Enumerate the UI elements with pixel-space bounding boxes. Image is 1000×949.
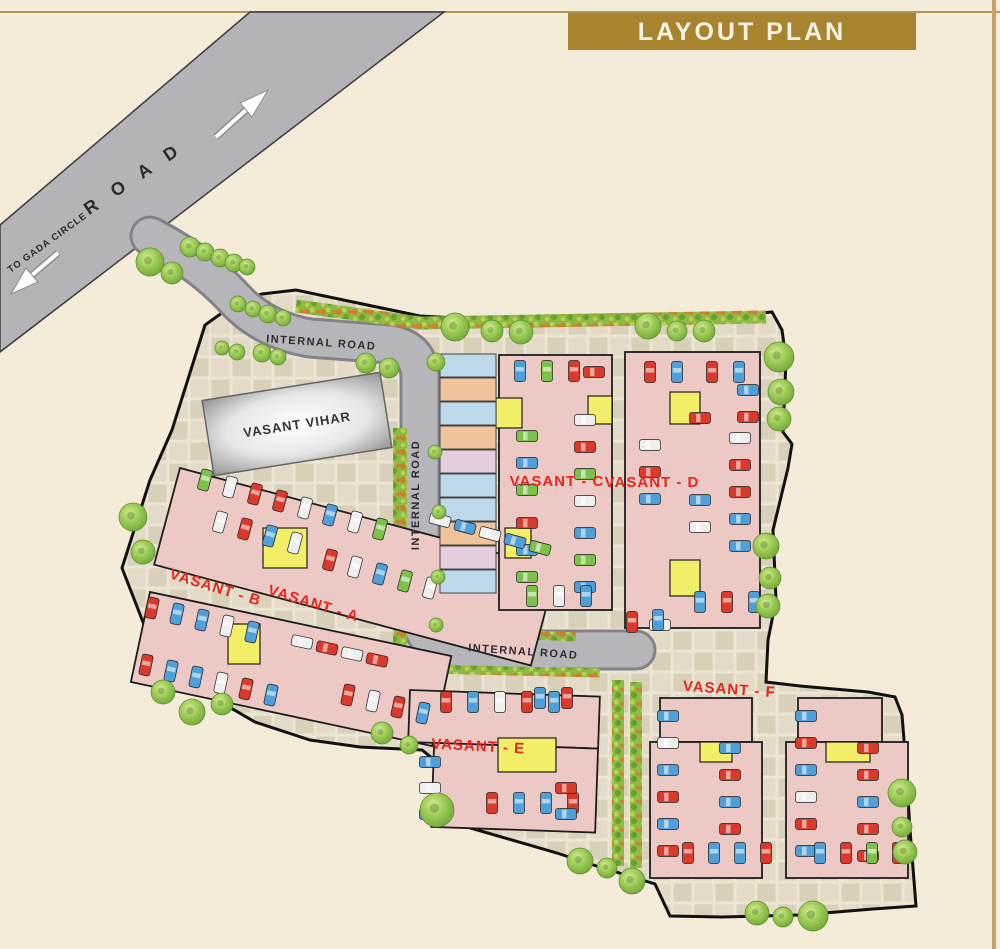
car-windshield (563, 694, 571, 699)
car-windshield (496, 698, 504, 703)
parked-car (653, 610, 664, 631)
car-windshield (696, 414, 701, 422)
car-windshield (581, 556, 586, 564)
car-windshield (664, 766, 669, 774)
parked-car (690, 522, 711, 533)
tree-icon-core (275, 354, 279, 358)
tree-icon-core (377, 729, 383, 735)
tree-icon-core (144, 257, 152, 265)
parked-car (562, 688, 573, 709)
tree-icon-core (449, 322, 457, 330)
car-windshield (523, 698, 531, 703)
car-windshield (543, 367, 551, 372)
tree-icon-core (264, 311, 269, 316)
car-windshield (864, 825, 869, 833)
parked-car (720, 770, 741, 781)
car-windshield (736, 542, 741, 550)
parked-car (514, 793, 525, 814)
parked-car (738, 385, 759, 396)
parked-car (730, 541, 751, 552)
parked-car (627, 612, 638, 633)
parked-car (796, 738, 817, 749)
shop-unit (440, 402, 496, 425)
shops-strip-layer (440, 354, 496, 593)
car-windshield (664, 847, 669, 855)
tree-icon-core (435, 574, 439, 578)
tree-icon-core (900, 847, 907, 854)
car-windshield (744, 413, 749, 421)
car-windshield (469, 698, 477, 703)
stair-core-C (496, 398, 522, 428)
car-windshield (628, 618, 636, 623)
car-windshield (528, 592, 536, 597)
parked-car (672, 362, 683, 383)
stair-core-D (670, 560, 700, 596)
parked-car (858, 824, 879, 835)
parked-car (658, 846, 679, 857)
parked-car (796, 765, 817, 776)
parked-car (575, 442, 596, 453)
tree-icon-core (516, 327, 523, 334)
car-windshield (550, 698, 558, 703)
parked-car (867, 843, 878, 864)
car-windshield (696, 523, 701, 531)
car-windshield (664, 820, 669, 828)
title-banner: LAYOUT PLAN (568, 13, 916, 50)
tree-icon-core (765, 574, 771, 580)
tree-icon-core (235, 301, 239, 305)
car-windshield (864, 744, 869, 752)
parked-car (707, 362, 718, 383)
shop-unit (440, 474, 496, 497)
car-windshield (864, 771, 869, 779)
car-windshield (523, 519, 528, 527)
parked-car (730, 514, 751, 525)
parked-car (658, 765, 679, 776)
car-windshield (523, 573, 528, 581)
right-border-line (992, 0, 996, 949)
car-windshield (744, 386, 749, 394)
tree-icon-core (673, 327, 679, 333)
car-windshield (736, 515, 741, 523)
parked-car (734, 362, 745, 383)
tree-icon-core (432, 359, 437, 364)
car-windshield (726, 771, 731, 779)
tree-icon-core (167, 269, 173, 275)
parked-car (522, 692, 533, 713)
page-title: LAYOUT PLAN (638, 18, 846, 46)
car-windshield (646, 495, 651, 503)
car-windshield (516, 367, 524, 372)
tree-icon-core (487, 327, 493, 333)
car-windshield (523, 432, 528, 440)
tree-icon-core (250, 306, 254, 310)
tree-icon-core (896, 788, 904, 796)
parked-car (569, 361, 580, 382)
tree-icon-core (230, 260, 235, 265)
parked-car (517, 431, 538, 442)
parked-car (549, 692, 560, 713)
car-windshield (673, 368, 681, 373)
layout-plan-page: R O A D TO GADA CIRCLE VASANT VIHAR INTE… (0, 0, 1000, 949)
car-windshield (581, 497, 586, 505)
shop-unit (440, 378, 496, 401)
car-windshield (726, 798, 731, 806)
shop-unit (440, 426, 496, 449)
parked-car (515, 361, 526, 382)
parked-car (796, 819, 817, 830)
tree-icon-core (234, 349, 238, 353)
tree-icon-core (898, 823, 904, 829)
car-windshield (646, 368, 654, 373)
car-windshield (735, 368, 743, 373)
car-windshield (426, 784, 431, 792)
car-windshield (523, 459, 528, 467)
tree-icon-core (138, 547, 145, 554)
car-windshield (562, 810, 567, 818)
parked-car (720, 824, 741, 835)
tree-icon-core (807, 910, 815, 918)
car-windshield (726, 744, 731, 752)
tree-icon-core (432, 449, 436, 453)
car-windshield (569, 799, 577, 804)
parked-car (722, 592, 733, 613)
parked-car (720, 743, 741, 754)
shop-unit (440, 546, 496, 569)
parked-car (658, 792, 679, 803)
parked-car (858, 797, 879, 808)
internal-road-label-vertical: INTERNAL ROAD (410, 440, 422, 550)
tree-icon-core (760, 541, 767, 548)
parked-car (575, 528, 596, 539)
car-windshield (696, 496, 701, 504)
tree-icon-core (127, 512, 135, 520)
parked-car (645, 362, 656, 383)
layout-plan-canvas: R O A D TO GADA CIRCLE VASANT VIHAR INTE… (0, 0, 1000, 949)
parked-car (658, 711, 679, 722)
car-windshield (426, 758, 431, 766)
parked-car (695, 592, 706, 613)
parked-car (420, 783, 441, 794)
car-windshield (562, 784, 567, 792)
parked-car (441, 692, 452, 713)
car-windshield (542, 799, 550, 804)
car-windshield (555, 592, 563, 597)
tree-icon-core (244, 264, 248, 268)
car-windshield (696, 598, 704, 603)
parked-car (761, 843, 772, 864)
shop-unit (440, 354, 496, 377)
car-windshield (802, 820, 807, 828)
parked-car (468, 692, 479, 713)
label-vasant-d: VASANT - D (605, 474, 700, 491)
parked-car (581, 586, 592, 607)
tree-icon-core (774, 414, 781, 421)
car-windshield (582, 592, 590, 597)
tree-icon-core (201, 249, 206, 254)
shop-unit (440, 450, 496, 473)
car-windshield (664, 739, 669, 747)
parked-car (730, 433, 751, 444)
car-windshield (488, 799, 496, 804)
parked-car (720, 797, 741, 808)
tree-icon-core (775, 387, 782, 394)
tree-icon-core (779, 913, 785, 919)
parked-car (517, 572, 538, 583)
tree-icon-core (385, 364, 391, 370)
tree-icon-core (186, 707, 193, 714)
tree-icon-core (217, 700, 223, 706)
tree-icon-core (574, 856, 581, 863)
parked-car (517, 518, 538, 529)
car-windshield (802, 739, 807, 747)
parked-car (575, 555, 596, 566)
car-windshield (646, 441, 651, 449)
parked-car (495, 692, 506, 713)
parked-car (796, 711, 817, 722)
tree-icon-core (433, 622, 437, 626)
parked-car (535, 688, 546, 709)
car-windshield (816, 849, 824, 854)
parked-car (556, 783, 577, 794)
car-windshield (684, 849, 692, 854)
parked-car (658, 738, 679, 749)
tree-icon-core (603, 864, 609, 870)
car-windshield (442, 698, 450, 703)
car-windshield (802, 766, 807, 774)
tree-icon-core (158, 687, 165, 694)
label-vasant-c: VASANT - C (510, 473, 605, 490)
car-windshield (802, 793, 807, 801)
parked-car (420, 757, 441, 768)
car-windshield (723, 598, 731, 603)
parked-car (542, 361, 553, 382)
shop-unit (440, 570, 496, 593)
tree-icon-core (362, 359, 368, 365)
car-windshield (590, 368, 595, 376)
tree-icon-core (642, 321, 649, 328)
car-windshield (654, 616, 662, 621)
parked-car (541, 793, 552, 814)
parked-car (487, 793, 498, 814)
car-windshield (868, 849, 876, 854)
parked-car (575, 496, 596, 507)
car-windshield (664, 793, 669, 801)
car-windshield (736, 488, 741, 496)
car-windshield (736, 461, 741, 469)
tree-icon-core (280, 315, 284, 319)
tree-icon-core (626, 876, 633, 883)
tree-icon-core (430, 804, 440, 814)
parked-car (658, 819, 679, 830)
car-windshield (581, 529, 586, 537)
parked-car (690, 495, 711, 506)
car-windshield (802, 712, 807, 720)
car-windshield (762, 849, 770, 854)
car-windshield (710, 849, 718, 854)
car-windshield (664, 712, 669, 720)
car-windshield (581, 416, 586, 424)
parked-car (858, 743, 879, 754)
car-windshield (736, 434, 741, 442)
parked-car (730, 487, 751, 498)
car-windshield (726, 825, 731, 833)
parked-car (796, 792, 817, 803)
parked-car (815, 843, 826, 864)
parked-car (683, 843, 694, 864)
parked-car (841, 843, 852, 864)
car-windshield (536, 694, 544, 699)
parked-car (554, 586, 565, 607)
tree-icon-core (699, 327, 705, 333)
parked-car (517, 458, 538, 469)
parked-car (640, 440, 661, 451)
parked-car (575, 415, 596, 426)
tree-icon-core (752, 908, 759, 915)
parked-car (556, 809, 577, 820)
hedge-strip (424, 669, 600, 673)
parked-car (584, 367, 605, 378)
car-windshield (570, 367, 578, 372)
tree-icon-core (405, 742, 410, 747)
tree-icon-core (436, 509, 440, 513)
tree-icon-core (216, 255, 221, 260)
tree-icon-core (258, 350, 263, 355)
parked-car (730, 460, 751, 471)
car-windshield (736, 849, 744, 854)
parked-car (709, 843, 720, 864)
car-windshield (864, 798, 869, 806)
tree-icon-core (186, 243, 192, 249)
tree-icon-core (773, 351, 781, 359)
parked-car (738, 412, 759, 423)
car-windshield (581, 443, 586, 451)
parked-car (640, 494, 661, 505)
parked-car (690, 413, 711, 424)
car-windshield (802, 847, 807, 855)
car-windshield (842, 849, 850, 854)
car-windshield (708, 368, 716, 373)
tree-icon-core (219, 345, 223, 349)
parked-car (735, 843, 746, 864)
parked-car (527, 586, 538, 607)
tree-icon-core (763, 601, 770, 608)
car-windshield (515, 799, 523, 804)
parked-car (858, 770, 879, 781)
parked-car (796, 846, 817, 857)
